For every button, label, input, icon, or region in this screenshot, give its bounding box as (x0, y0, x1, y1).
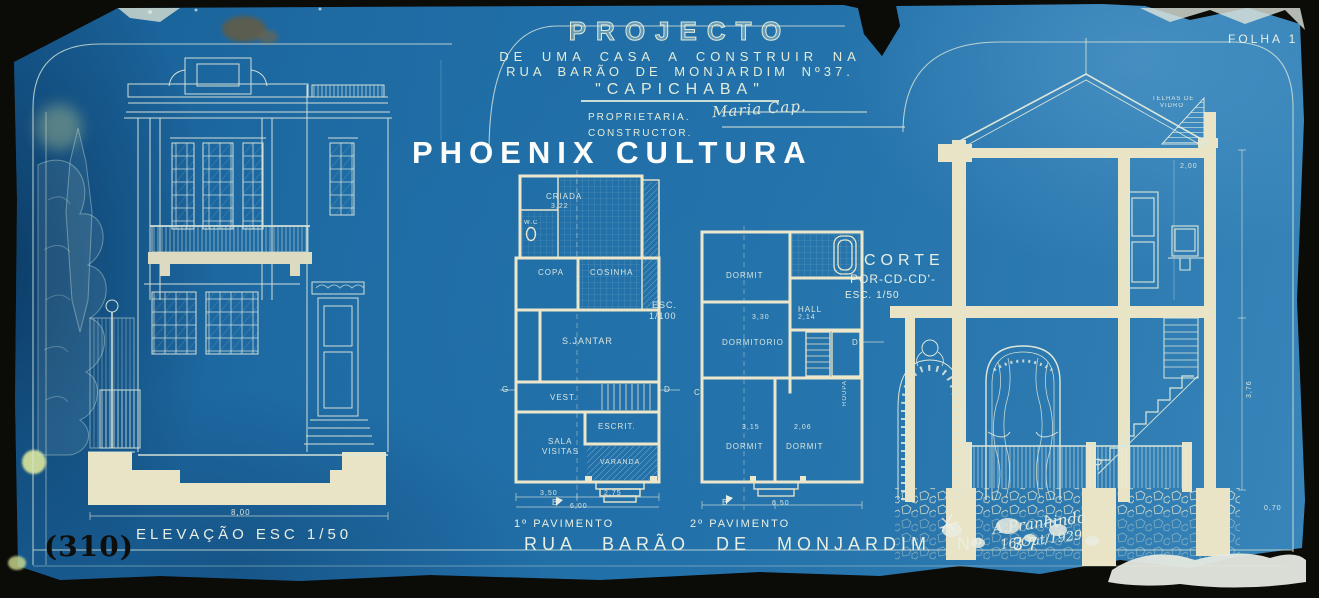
dim-2-06: 2,06 (794, 424, 812, 431)
note-telhas-1: TELHAS DE (1152, 96, 1194, 102)
street-title: RUA BARÃO DE MONJARDIM Nº 37 (524, 534, 1043, 555)
label-escrit: ESCRIT. (598, 422, 636, 431)
dim-2-75: 2,75 (604, 490, 622, 497)
section-scale-label: ESC. 1/50 (845, 290, 900, 301)
label-cosinha: COSINHA (590, 268, 633, 277)
section-drawing (890, 38, 1246, 566)
dim-3-22: 3,22 (551, 203, 569, 210)
scale-esc: ESC. (652, 300, 677, 310)
plan2-drawing (702, 226, 884, 512)
project-name: "CAPICHABA" (581, 81, 779, 102)
dim-2-00: 2,00 (1180, 163, 1198, 170)
section-cut-label: POR-CD-CD'- (850, 272, 936, 286)
catalog-number: (310) (44, 530, 134, 563)
proprietaria-label: PROPRIETARIA. (588, 112, 691, 123)
label-dormitorio: DORMITORIO (722, 338, 784, 347)
sheet-number-label: FOLHA 1 (1228, 32, 1298, 46)
marker-b2: B' (722, 498, 731, 507)
watermark-text: PHOENIX CULTURA (412, 135, 813, 171)
dim-3-50: 3,50 (540, 490, 558, 497)
marker-c: C (694, 388, 701, 397)
dim-0-70: 0,70 (1264, 505, 1282, 512)
label-hall: HALL (798, 305, 822, 314)
elevation-label: ELEVAÇÃO ESC 1/50 (136, 526, 352, 543)
project-subtitle: DE UMA CASA A CONSTRUIR NA (470, 49, 890, 64)
label-vest: VEST. (550, 393, 577, 402)
project-title: PROJECTO (470, 16, 890, 46)
label-visitas: VISITAS (542, 447, 579, 456)
plan1-label: 1º PAVIMENTO (514, 518, 614, 530)
label-copa: COPA (538, 268, 564, 277)
blueprint-scan: PROJECTO DE UMA CASA A CONSTRUIR NA RUA … (0, 0, 1319, 598)
label-dormit-2: DORMIT (726, 442, 764, 451)
dim-6-00: 6,00 (570, 503, 588, 510)
scale-1-100: 1/100 (649, 311, 677, 321)
label-varanda: VARANDA (600, 459, 640, 466)
note-telhas-2: VIDRO (1160, 103, 1184, 109)
plan2-label: 2º PAVIMENTO (690, 518, 790, 530)
label-criada: CRIADA (546, 192, 582, 201)
elevation-drawing (38, 58, 392, 520)
marker-b: B (552, 498, 558, 507)
label-dormit-3: DORMIT (786, 442, 824, 451)
dim-3-30: 3,30 (752, 314, 770, 321)
marker-d2: D' (852, 338, 861, 347)
dim-6-50: 6,50 (772, 500, 790, 507)
dim-3-15: 3,15 (742, 424, 760, 431)
marker-d: D (664, 385, 671, 394)
label-sjantar: S.JANTAR (562, 336, 613, 346)
label-roupa: ROUPA (842, 380, 848, 406)
title-block: PROJECTO DE UMA CASA A CONSTRUIR NA RUA … (470, 16, 890, 102)
label-sala: SALA (548, 437, 572, 446)
dim-2-14: 2,14 (798, 314, 816, 321)
dim-3-76: 3,76 (1246, 380, 1253, 398)
marker-g: G (502, 385, 509, 394)
dim-8-00: 8,00 (231, 508, 251, 517)
project-address: RUA BARÃO DE MONJARDIM Nº37. (470, 64, 890, 79)
label-dormit-1: DORMIT (726, 271, 764, 280)
label-wc: W.C (524, 220, 538, 226)
section-label: CORTE (864, 252, 945, 270)
